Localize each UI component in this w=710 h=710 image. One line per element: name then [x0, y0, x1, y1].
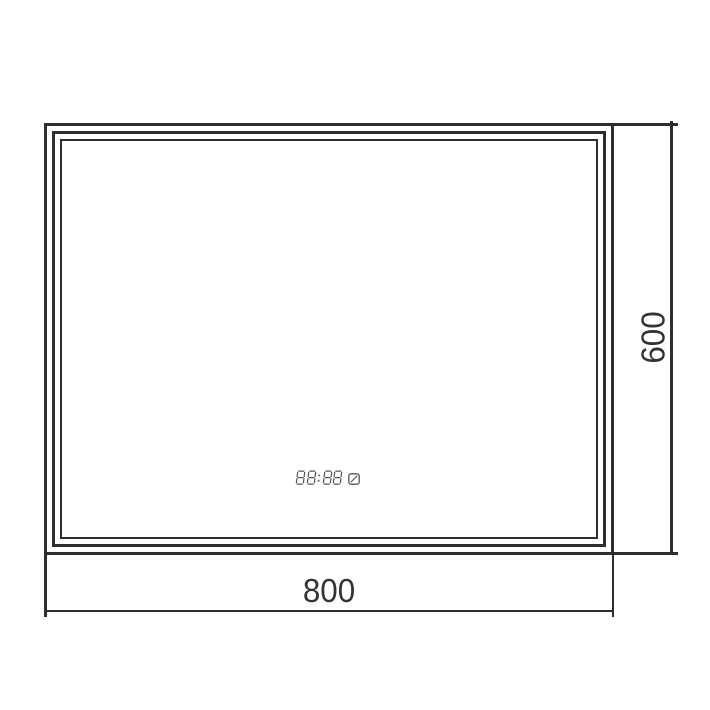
- clock-digit: [306, 470, 317, 486]
- led-clock-display: [296, 470, 360, 486]
- width-dimension-label: 800: [58, 574, 600, 607]
- width-extension-line-left: [44, 555, 47, 617]
- clock-digits: [295, 470, 343, 486]
- clock-digit: [332, 470, 343, 486]
- mirror-technical-drawing: 800 600: [0, 0, 710, 710]
- height-dimension-label: 600: [637, 262, 670, 414]
- clock-digit: [322, 470, 333, 486]
- width-dimension-line: [44, 610, 614, 613]
- height-extension-line-top: [614, 123, 678, 126]
- height-extension-line-bottom: [614, 552, 678, 555]
- clock-digit: [295, 470, 306, 486]
- touch-sensor-icon: [348, 473, 360, 485]
- width-extension-line-right: [612, 555, 615, 617]
